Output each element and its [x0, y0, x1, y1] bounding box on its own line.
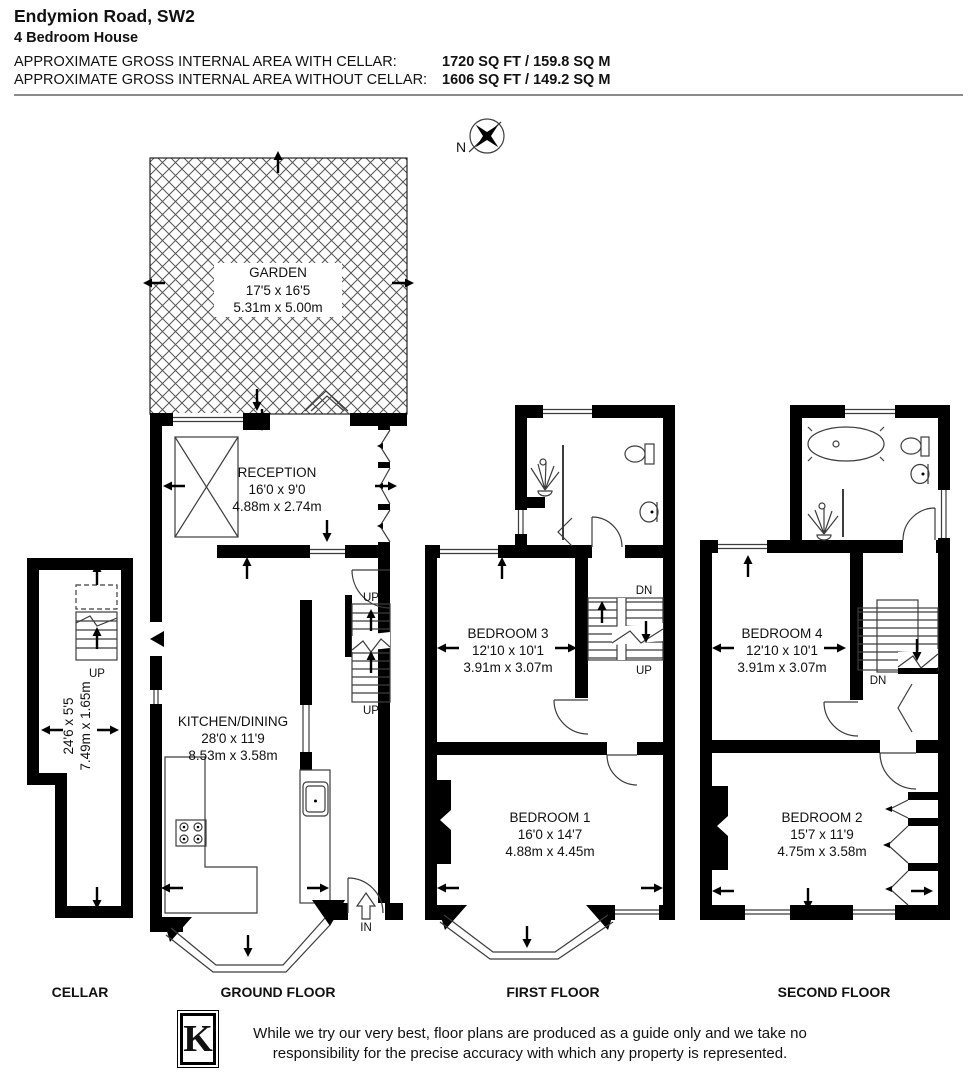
room-dims-m-cellar: 7.49m x 1.65m	[78, 681, 93, 770]
floor-label-cellar: CELLAR	[52, 984, 109, 1000]
dimension-arrow	[523, 926, 532, 948]
room-label-bedroom1: BEDROOM 1	[509, 810, 590, 825]
room-dims-m-garden: 5.31m x 5.00m	[233, 300, 322, 315]
dimension-arrow	[911, 887, 933, 896]
window	[310, 545, 345, 558]
window	[440, 545, 498, 558]
dimension-arrow	[243, 557, 252, 579]
k-logo-letter: K	[183, 1020, 213, 1058]
dimension-arrow	[712, 644, 734, 653]
down-label: DN	[636, 585, 653, 597]
room-label-kitchen: KITCHEN/DINING	[178, 714, 288, 729]
floorplan-page: Endymion Road, SW2 4 Bedroom House APPRO…	[0, 0, 977, 1080]
k-logo: K	[177, 1010, 219, 1068]
disclaimer-line1: While we try our very best, floor plans …	[238, 1024, 822, 1044]
window	[543, 405, 592, 418]
staircase-icon	[588, 598, 663, 660]
room-dims-ft-bedroom3: 12'10 x 10'1	[472, 643, 544, 658]
dimension-arrow	[641, 884, 663, 893]
second-floor-plan: DN BEDROOM 4	[700, 405, 950, 920]
door-arc	[824, 702, 858, 736]
window	[615, 905, 659, 920]
room-dims-ft-bedroom4: 12'10 x 10'1	[746, 643, 818, 658]
down-label: DN	[870, 675, 887, 687]
room-dims-ft-garden: 17'5 x 16'5	[246, 283, 310, 298]
dimension-arrow	[437, 644, 459, 653]
compass-icon: N	[456, 119, 504, 155]
window	[938, 490, 950, 538]
north-label: N	[456, 139, 466, 155]
room-dims-m-kitchen: 8.53m x 3.58m	[188, 748, 277, 763]
floor-label-first: FIRST FLOOR	[506, 984, 599, 1000]
door-arc	[903, 508, 935, 540]
room-dims-ft-cellar: 24'6 x 5'5	[61, 698, 76, 755]
first-floor-plan: DN UP BEDROOM 3 12'10 x 10'1	[425, 405, 675, 959]
door-arc	[880, 753, 916, 789]
dimension-arrow	[555, 644, 577, 653]
toilet-icon	[901, 437, 929, 456]
cellar-plan: UP 24'6 x 5'5 7.49m x 1.65m	[27, 558, 133, 918]
bathtub-icon	[808, 427, 884, 461]
room-dims-ft-reception: 16'0 x 9'0	[249, 482, 306, 497]
up-label: UP	[363, 705, 379, 717]
window	[845, 405, 895, 418]
dimension-arrow	[163, 482, 185, 491]
dimension-arrow	[323, 520, 332, 542]
room-dims-ft-bedroom2: 15'7 x 11'9	[790, 827, 853, 842]
dimension-arrow	[498, 557, 507, 579]
staircase-icon	[858, 600, 938, 674]
window	[515, 510, 527, 534]
entrance-label: IN	[360, 922, 372, 934]
dimension-arrow	[824, 644, 846, 653]
toilet-icon	[625, 444, 654, 464]
disclaimer-line2: responsibility for the precise accuracy …	[238, 1044, 822, 1064]
room-label-garden: GARDEN	[249, 265, 307, 280]
room-dims-m-bedroom3: 3.91m x 3.07m	[463, 660, 552, 675]
dimension-arrow	[244, 935, 253, 957]
floor-label-second: SECOND FLOOR	[778, 984, 891, 1000]
up-label: UP	[89, 668, 105, 680]
floor-label-ground: GROUND FLOOR	[220, 984, 335, 1000]
dimension-arrow	[744, 555, 753, 577]
up-label: UP	[636, 665, 652, 677]
window	[718, 540, 767, 553]
basin-icon	[911, 464, 929, 484]
room-label-reception: RECEPTION	[238, 465, 317, 480]
room-dims-ft-bedroom1: 16'0 x 14'7	[518, 827, 582, 842]
glazed-screen	[303, 705, 309, 752]
basin-icon	[640, 502, 658, 522]
window	[150, 690, 162, 704]
room-label-bedroom4: BEDROOM 4	[741, 626, 823, 641]
window-casement	[883, 792, 938, 905]
shower-icon	[808, 503, 838, 540]
dimension-arrow	[712, 887, 734, 896]
room-dims-m-bedroom1: 4.88m x 4.45m	[505, 844, 594, 859]
floorplan-svg: N GARDEN 17'5 x 16'5 5.31m x 5.00m	[0, 0, 977, 1080]
dimension-arrow	[437, 884, 459, 893]
kitchen-counter	[165, 757, 257, 913]
room-label-bedroom3: BEDROOM 3	[467, 626, 548, 641]
cupboard-door	[558, 518, 572, 546]
room-dims-ft-kitchen: 28'0 x 11'9	[201, 731, 264, 746]
shower-icon	[531, 459, 559, 496]
room-dims-m-bedroom2: 4.75m x 3.58m	[777, 844, 866, 859]
disclaimer: While we try our very best, floor plans …	[238, 1024, 822, 1063]
ground-floor-plan: UP UP IN	[150, 409, 407, 972]
cupboard-door	[898, 684, 912, 732]
room-dims-m-reception: 4.88m x 2.74m	[232, 499, 321, 514]
room-dims-m-bedroom4: 3.91m x 3.07m	[737, 660, 826, 675]
up-label: UP	[363, 592, 379, 604]
door-arc	[554, 700, 588, 734]
room-label-bedroom2: BEDROOM 2	[781, 810, 862, 825]
door-arc	[592, 517, 622, 547]
garden-area: GARDEN 17'5 x 16'5 5.31m x 5.00m	[143, 151, 414, 414]
window	[173, 413, 243, 426]
door-arc	[607, 755, 637, 785]
